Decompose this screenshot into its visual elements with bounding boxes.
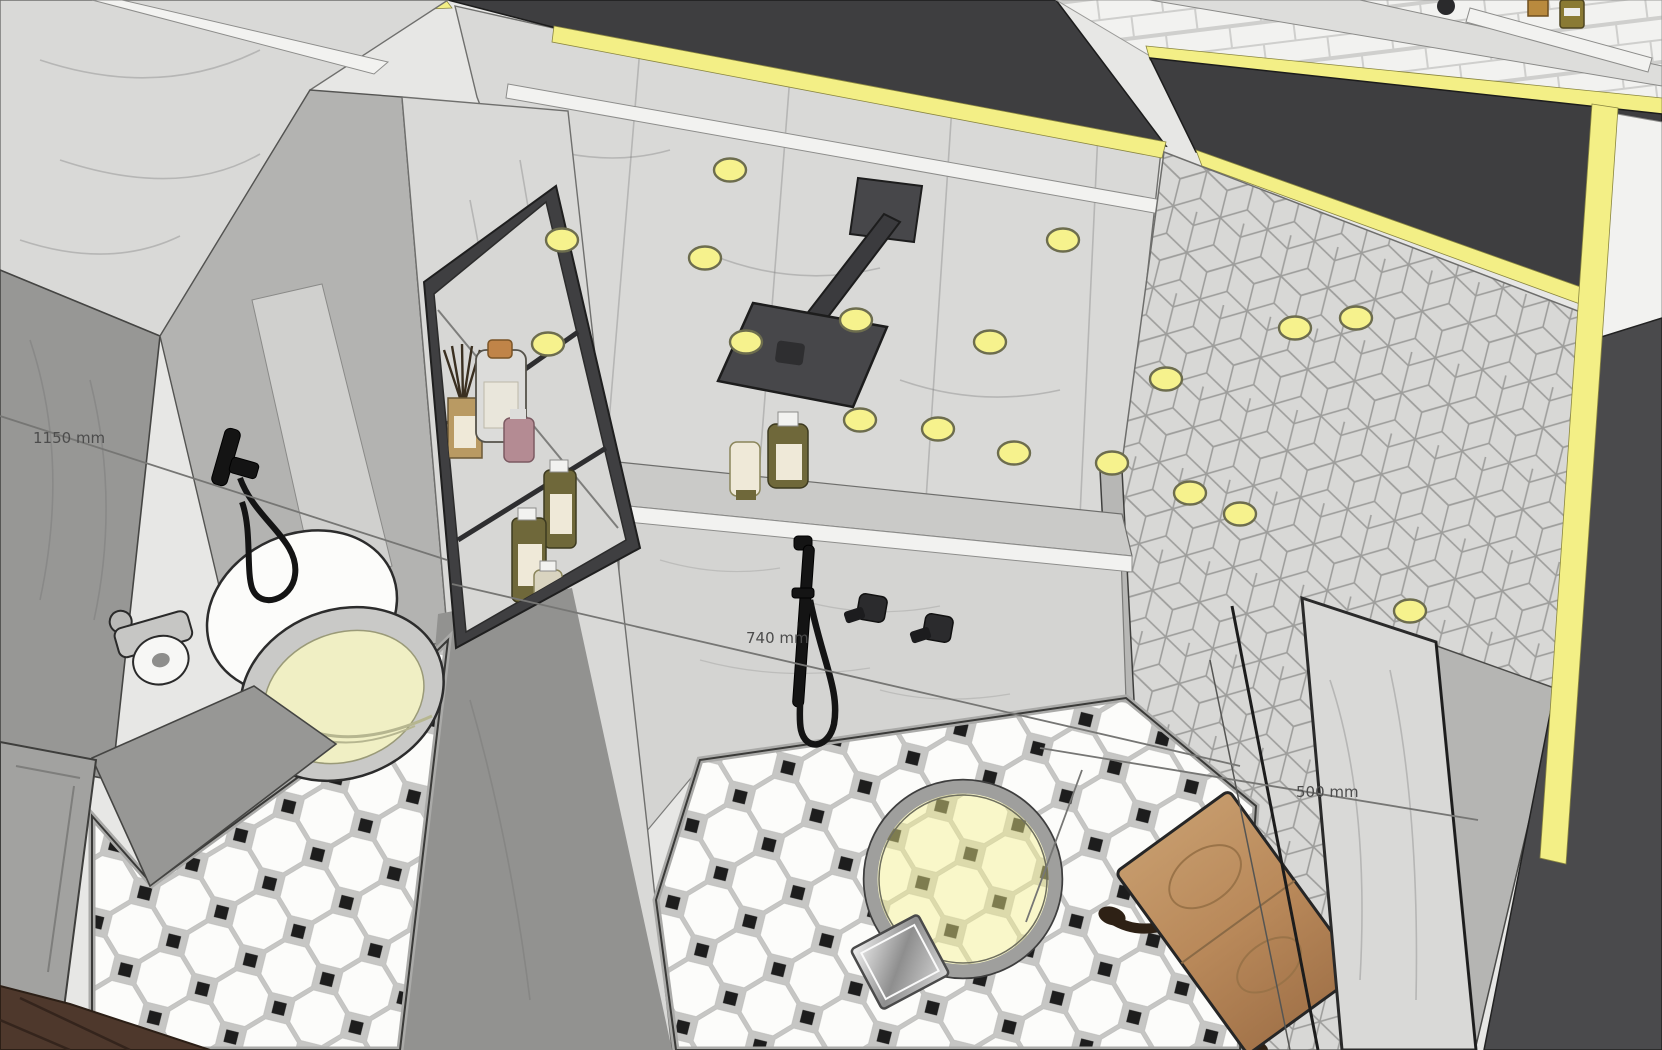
recessed-light-icon (1096, 452, 1128, 475)
recessed-light-icon (1340, 307, 1372, 330)
recessed-light-icon (1174, 482, 1206, 505)
recessed-light-icon (1279, 317, 1311, 340)
recessed-light-icon (922, 418, 954, 441)
dimension-label-left: 1150 mm (33, 429, 105, 447)
scene-svg: 1150 mm 740 mm 500 mm (0, 0, 1662, 1050)
recessed-light-icon (730, 331, 762, 354)
recessed-light-icon (1047, 229, 1079, 252)
dimension-label-center: 740 mm (746, 629, 809, 647)
viewport[interactable]: 1150 mm 740 mm 500 mm (0, 0, 1662, 1050)
recessed-light-icon (1150, 368, 1182, 391)
recessed-light-icon (1394, 600, 1426, 623)
recessed-light-icon (1224, 503, 1256, 526)
recessed-light-icon (840, 309, 872, 332)
recessed-light-icon (689, 247, 721, 270)
shampoo-tube (730, 442, 760, 496)
recessed-light-icon (998, 442, 1030, 465)
recessed-light-icon (546, 229, 578, 252)
shower-head-nozzle (775, 340, 806, 366)
cosmetic-bottle-small (1528, 0, 1548, 16)
dimension-label-right: 500 mm (1296, 783, 1359, 801)
recessed-light-icon (844, 409, 876, 432)
recessed-light-icon (532, 333, 564, 356)
recessed-light-icon (974, 331, 1006, 354)
recessed-light-icon (714, 159, 746, 182)
shampoo-bottle-niche-1 (544, 460, 576, 548)
